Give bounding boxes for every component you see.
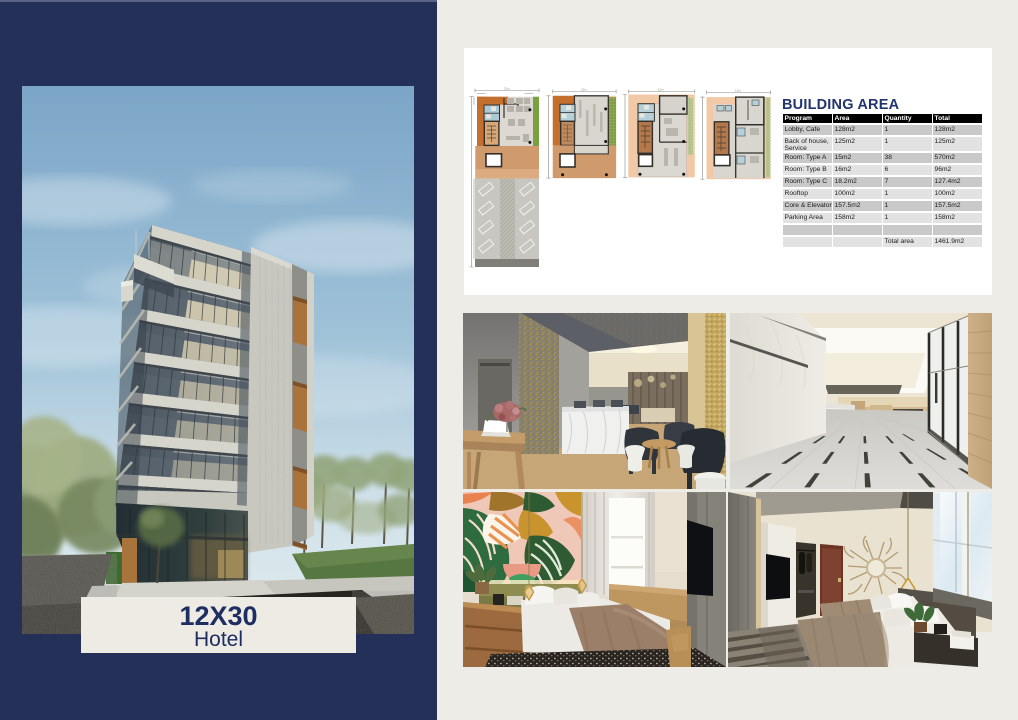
svg-text:12m: 12m (504, 87, 510, 91)
svg-text:12m: 12m (581, 88, 587, 92)
svg-text:12m: 12m (735, 89, 741, 93)
svg-text:12m: 12m (658, 88, 664, 92)
